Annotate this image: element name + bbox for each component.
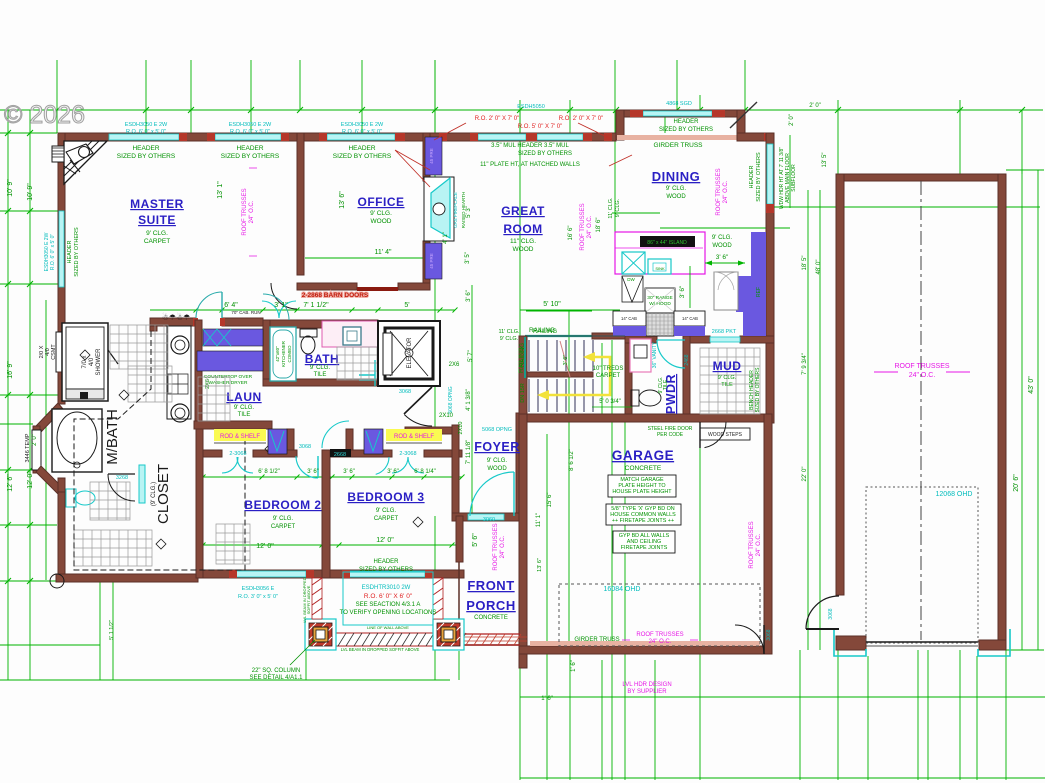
svg-text:SEE DETAIL 4/A1.1: SEE DETAIL 4/A1.1 <box>249 675 303 681</box>
svg-text:2X6: 2X6 <box>449 362 460 368</box>
svg-text:3068: 3068 <box>399 389 411 395</box>
svg-text:© 2026: © 2026 <box>4 101 85 129</box>
svg-text:++ FIRETAPE JOINTS ++: ++ FIRETAPE JOINTS ++ <box>612 518 674 524</box>
svg-text:2' 0": 2' 0" <box>789 114 795 126</box>
svg-text:SIZED BY OTHERS: SIZED BY OTHERS <box>333 153 392 160</box>
svg-text:2X10: 2X10 <box>458 422 464 435</box>
svg-text:5' 0 3/4": 5' 0 3/4" <box>599 399 621 405</box>
svg-text:5' 1 1/2": 5' 1 1/2" <box>109 620 115 640</box>
svg-text:GARAGE: GARAGE <box>612 448 674 463</box>
svg-text:WOOD: WOOD <box>712 243 732 249</box>
svg-text:4' 1 3/8": 4' 1 3/8" <box>466 389 472 411</box>
svg-text:43' 0": 43' 0" <box>1028 376 1035 394</box>
svg-text:14" CAB: 14" CAB <box>682 316 698 321</box>
svg-text:GIRDER TRUSS: GIRDER TRUSS <box>574 637 619 643</box>
svg-text:24" O.C.: 24" O.C. <box>649 639 672 645</box>
svg-text:9' CLG.: 9' CLG. <box>500 336 519 342</box>
svg-text:CSMT: CSMT <box>51 344 57 360</box>
svg-text:RAILING: RAILING <box>520 343 526 367</box>
svg-text:3068: 3068 <box>828 608 834 619</box>
svg-text:HEADER: HEADER <box>236 145 263 152</box>
svg-text:ROOM: ROOM <box>503 222 542 236</box>
svg-text:11' CLG.: 11' CLG. <box>498 329 520 335</box>
svg-text:HEADER: HEADER <box>67 241 73 264</box>
svg-text:6' 4": 6' 4" <box>224 302 238 309</box>
svg-text:9' CLG.: 9' CLG. <box>310 365 330 371</box>
svg-text:HEADER: HEADER <box>373 559 399 565</box>
svg-text:CLOSET: CLOSET <box>155 464 172 524</box>
svg-text:11' CLG.: 11' CLG. <box>608 197 614 219</box>
svg-text:R.O. 6' 0" x 5' 0": R.O. 6' 0" x 5' 0" <box>126 129 166 135</box>
svg-text:ROOF TRUSSES: ROOF TRUSSES <box>242 188 248 235</box>
svg-text:GAS FIREPLACE: GAS FIREPLACE <box>453 192 458 228</box>
svg-text:15' 6": 15' 6" <box>547 493 553 508</box>
svg-text:3068: 3068 <box>299 444 311 450</box>
svg-text:BEDROOM 2: BEDROOM 2 <box>244 498 321 512</box>
svg-text:12' 0": 12' 0" <box>27 471 34 489</box>
svg-text:TILE: TILE <box>663 379 669 390</box>
svg-text:3' 6": 3' 6" <box>387 469 399 475</box>
svg-text:2X6: 2X6 <box>205 379 211 389</box>
svg-text:W/ HOOD: W/ HOOD <box>649 301 671 307</box>
svg-text:5' 7": 5' 7" <box>468 350 474 362</box>
svg-text:9' CLG.: 9' CLG. <box>146 230 168 237</box>
svg-text:6' 8 1/4": 6' 8 1/4" <box>414 469 436 475</box>
svg-text:3' 6": 3' 6" <box>466 290 472 302</box>
svg-text:SINK: SINK <box>655 266 665 271</box>
svg-text:3.5" MUL HEADER 3.5" MUL: 3.5" MUL HEADER 3.5" MUL <box>491 143 569 149</box>
svg-text:R.O. 5' 0" X 7' 0": R.O. 5' 0" X 7' 0" <box>518 124 563 130</box>
svg-text:R.O. 2' 0" X 7' 0": R.O. 2' 0" X 7' 0" <box>559 116 604 122</box>
svg-text:WOOD: WOOD <box>666 194 686 200</box>
svg-text:FRONT: FRONT <box>467 578 514 593</box>
svg-text:LAUN: LAUN <box>226 390 261 404</box>
svg-text:1' 6": 1' 6" <box>541 696 553 702</box>
svg-text:CARPET: CARPET <box>374 516 399 522</box>
svg-text:ROD & SHELF: ROD & SHELF <box>220 434 260 440</box>
svg-text:SIZED BY OTHERS: SIZED BY OTHERS <box>359 567 413 573</box>
svg-text:7/0 x: 7/0 x <box>82 355 88 368</box>
svg-text:SIZED BY OTHERS: SIZED BY OTHERS <box>221 153 280 160</box>
svg-text:HEADER: HEADER <box>749 166 755 189</box>
svg-text:LVL BEAM IN DROPPED SOFFIT ABO: LVL BEAM IN DROPPED SOFFIT ABOVE <box>341 647 420 652</box>
svg-text:2-3068: 2-3068 <box>399 451 416 457</box>
svg-text:MUD: MUD <box>713 359 742 373</box>
svg-text:DINING: DINING <box>652 169 701 184</box>
svg-text:8' 6 1/2": 8' 6 1/2" <box>569 449 575 471</box>
svg-text:CONCRETE: CONCRETE <box>625 465 662 472</box>
svg-text:2-2868 BARN DOORS: 2-2868 BARN DOORS <box>302 292 369 299</box>
svg-text:SIZED BY OTHERS: SIZED BY OTHERS <box>117 153 176 160</box>
svg-text:ESDH3050 E 2W: ESDH3050 E 2W <box>341 122 384 128</box>
svg-text:WOOD STEPS: WOOD STEPS <box>708 432 743 438</box>
svg-text:3' 6": 3' 6" <box>716 254 729 261</box>
svg-text:18' 5": 18' 5" <box>802 256 808 271</box>
svg-text:TILE: TILE <box>238 412 251 418</box>
svg-text:3446 TEMP: 3446 TEMP <box>25 433 31 462</box>
svg-text:4868 SGD: 4868 SGD <box>666 101 692 107</box>
svg-text:3068: 3068 <box>766 629 772 640</box>
svg-text:SOFFIT ABOVE: SOFFIT ABOVE <box>306 585 311 614</box>
svg-text:12' 0": 12' 0" <box>256 543 274 550</box>
svg-text:11" CLG.: 11" CLG. <box>510 238 536 245</box>
svg-text:45 PRE: 45 PRE <box>429 148 434 164</box>
svg-text:SIZED BY OTHERS: SIZED BY OTHERS <box>756 152 762 202</box>
svg-text:6' 8 1/2": 6' 8 1/2" <box>258 469 280 475</box>
svg-text:10' 9": 10' 9" <box>27 183 34 201</box>
svg-text:3' 6": 3' 6" <box>307 469 319 475</box>
svg-text:10" TREDS: 10" TREDS <box>593 366 624 372</box>
svg-text:ROOF TRUSSES: ROOF TRUSSES <box>894 363 949 370</box>
svg-text:20' 6": 20' 6" <box>1013 474 1020 492</box>
svg-text:MASTER: MASTER <box>130 197 184 211</box>
svg-text:SUBFLOOR: SUBFLOOR <box>791 164 797 192</box>
svg-text:CARPET: CARPET <box>596 373 621 379</box>
svg-text:CARPET: CARPET <box>271 524 296 530</box>
svg-text:22' 0": 22' 0" <box>802 467 808 482</box>
svg-text:PER CODE: PER CODE <box>657 432 684 438</box>
svg-text:9' CLG.: 9' CLG. <box>234 405 254 411</box>
svg-text:24" O.C.: 24" O.C. <box>723 180 729 203</box>
svg-text:3' 1": 3' 1" <box>274 302 288 309</box>
svg-text:2' 0": 2' 0" <box>809 103 821 109</box>
svg-text:9' CLG.: 9' CLG. <box>273 516 293 522</box>
svg-text:13' 6": 13' 6" <box>537 558 543 572</box>
svg-text:5068 OPNG: 5068 OPNG <box>448 386 454 413</box>
svg-text:SIZED BY OTHERS: SIZED BY OTHERS <box>659 127 713 133</box>
svg-text:WOOD: WOOD <box>487 466 507 472</box>
svg-text:R.O. 2' 0" X 7' 0": R.O. 2' 0" X 7' 0" <box>475 116 520 122</box>
svg-text:9' CLG.: 9' CLG. <box>487 458 507 464</box>
svg-text:9' CLG.: 9' CLG. <box>718 375 737 381</box>
svg-text:22" SQ. COLUMN: 22" SQ. COLUMN <box>252 668 300 674</box>
svg-text:11' 1": 11' 1" <box>536 513 542 528</box>
svg-text:LINE OF WALL ABOVE: LINE OF WALL ABOVE <box>367 625 409 630</box>
svg-text:4/0: 4/0 <box>89 357 95 366</box>
svg-text:11" PLATE HT, AT HATCHED WALLS: 11" PLATE HT, AT HATCHED WALLS <box>480 162 580 168</box>
svg-text:5' 6": 5' 6" <box>472 533 479 547</box>
svg-text:R.O. 6' 0" x 5' 0": R.O. 6' 0" x 5' 0" <box>230 129 270 135</box>
svg-text:LVL HDR DESIGN: LVL HDR DESIGN <box>622 682 671 688</box>
svg-text:KITCHENER: KITCHENER <box>281 340 286 367</box>
svg-text:24" O.C.: 24" O.C. <box>756 533 762 556</box>
svg-text:HOUSE PLATE HEIGHT: HOUSE PLATE HEIGHT <box>612 489 672 495</box>
svg-text:5' 3": 5' 3" <box>466 206 472 218</box>
svg-text:SIZED BY OTHERS: SIZED BY OTHERS <box>755 367 761 413</box>
svg-text:COMBO: COMBO <box>287 345 292 363</box>
svg-text:2668: 2668 <box>334 452 346 458</box>
svg-text:(9' CLG.): (9' CLG.) <box>151 482 157 506</box>
svg-text:3' 6": 3' 6" <box>679 285 686 298</box>
svg-text:ROOF TRUSSES: ROOF TRUSSES <box>493 523 499 570</box>
svg-text:3268: 3268 <box>116 475 128 481</box>
svg-text:45 PRE: 45 PRE <box>429 253 434 269</box>
svg-text:42"x60": 42"x60" <box>275 346 280 362</box>
svg-text:R.O. 3' 0" x 5' 0": R.O. 3' 0" x 5' 0" <box>238 594 278 600</box>
svg-text:ESDH3050 E 2W: ESDH3050 E 2W <box>229 122 272 128</box>
svg-text:GREAT: GREAT <box>501 204 545 218</box>
svg-text:16' 6": 16' 6" <box>568 226 574 241</box>
svg-text:11' 4": 11' 4" <box>375 249 392 256</box>
svg-text:10' 9": 10' 9" <box>7 179 14 197</box>
svg-text:R.O. 6' 0" x 5' 0": R.O. 6' 0" x 5' 0" <box>342 129 382 135</box>
svg-text:ESDHTR3010 2W: ESDHTR3010 2W <box>362 585 411 591</box>
svg-text:3' 5": 3' 5" <box>465 252 471 264</box>
svg-text:SUITE: SUITE <box>138 213 176 227</box>
svg-text:7' 9 3/4": 7' 9 3/4" <box>802 353 808 375</box>
svg-text:7' 1 1/2": 7' 1 1/2" <box>303 302 329 309</box>
svg-text:ROOF TRUSSES: ROOF TRUSSES <box>636 632 683 638</box>
svg-text:BY SUPPLIER: BY SUPPLIER <box>627 689 667 695</box>
svg-text:5' 10": 5' 10" <box>543 301 561 308</box>
svg-text:SIZED BY OTHERS: SIZED BY OTHERS <box>518 151 572 157</box>
svg-text:DW: DW <box>627 277 635 282</box>
svg-text:DN 15R: DN 15R <box>520 383 526 403</box>
svg-text:2468: 2468 <box>684 354 690 365</box>
svg-text:PORCH: PORCH <box>466 598 515 613</box>
svg-text:13' 5": 13' 5" <box>822 153 828 168</box>
svg-text:ROOF TRUSSES: ROOF TRUSSES <box>716 168 722 215</box>
svg-text:FOYER: FOYER <box>474 440 520 454</box>
svg-text:SIZED BY OTHERS: SIZED BY OTHERS <box>74 227 80 277</box>
svg-text:R.O. 6' 0" X 6' 0": R.O. 6' 0" X 6' 0" <box>364 593 413 600</box>
svg-text:WASHER/DRYER: WASHER/DRYER <box>209 380 248 386</box>
svg-text:7' 11 1/8": 7' 11 1/8" <box>466 440 472 465</box>
svg-text:SHOWER: SHOWER <box>96 348 102 376</box>
svg-text:18' 6": 18' 6" <box>596 218 602 233</box>
svg-text:☃☂☃☂: ☃☂☃☂ <box>162 312 191 322</box>
svg-text:16' 9": 16' 9" <box>7 361 14 379</box>
svg-text:TO VERIFY OPENING LOCATIONS: TO VERIFY OPENING LOCATIONS <box>340 610 437 616</box>
svg-text:9' CLG.: 9' CLG. <box>376 508 396 514</box>
svg-text:3060: 3060 <box>483 517 495 523</box>
svg-text:24" O.C.: 24" O.C. <box>500 535 506 558</box>
svg-text:SEE SEACTION 4/3.1 A: SEE SEACTION 4/3.1 A <box>356 602 421 608</box>
svg-text:12' 0": 12' 0" <box>376 537 394 544</box>
svg-text:ROOF TRUSSES: ROOF TRUSSES <box>580 203 586 250</box>
svg-text:HEADER: HEADER <box>673 119 699 125</box>
svg-text:HEADER: HEADER <box>132 145 159 152</box>
svg-text:5': 5' <box>404 302 409 309</box>
svg-text:13' 6": 13' 6" <box>339 191 346 209</box>
svg-text:TILE: TILE <box>721 382 733 388</box>
svg-text:48' 0": 48' 0" <box>816 260 822 275</box>
svg-text:ROOF TRUSSES: ROOF TRUSSES <box>749 521 755 568</box>
svg-text:24" O.C.: 24" O.C. <box>587 215 593 238</box>
svg-text:M/BATH: M/BATH <box>104 409 121 465</box>
svg-text:RAILING: RAILING <box>533 329 557 335</box>
svg-text:30" RANGE: 30" RANGE <box>647 295 672 301</box>
svg-text:WOOD: WOOD <box>513 246 534 253</box>
svg-text:HEADER: HEADER <box>348 145 375 152</box>
svg-text:3' 6": 3' 6" <box>563 355 569 366</box>
svg-text:FIRETAPE JOINTS: FIRETAPE JOINTS <box>621 545 668 551</box>
svg-text:ESDH5050: ESDH5050 <box>517 104 545 110</box>
svg-text:BATH: BATH <box>305 352 339 366</box>
svg-text:2' 0": 2' 0" <box>32 434 38 446</box>
svg-text:70" CAB. RUN: 70" CAB. RUN <box>231 310 260 315</box>
svg-text:9' CLG.: 9' CLG. <box>712 235 732 241</box>
svg-text:16084 OHD: 16084 OHD <box>604 586 641 593</box>
svg-text:GIRDER TRUSS: GIRDER TRUSS <box>654 142 704 149</box>
svg-text:9' CLG.: 9' CLG. <box>615 198 621 217</box>
svg-text:86" x 44" ISLAND: 86" x 44" ISLAND <box>647 240 687 246</box>
svg-text:3' 6": 3' 6" <box>343 469 355 475</box>
svg-text:14" CAB: 14" CAB <box>621 316 637 321</box>
svg-text:REF: REF <box>756 287 762 297</box>
svg-text:24" O.C.: 24" O.C. <box>249 200 255 223</box>
svg-text:TILE: TILE <box>314 372 327 378</box>
svg-text:ELEVATOR: ELEVATOR <box>407 337 413 369</box>
svg-text:R.O. 6' 0" x 5' 0": R.O. 6' 0" x 5' 0" <box>50 234 56 271</box>
svg-text:5068 OPNG: 5068 OPNG <box>482 427 512 433</box>
svg-text:12068 OHD: 12068 OHD <box>936 491 973 498</box>
svg-text:24" O.C.: 24" O.C. <box>909 372 936 379</box>
svg-text:1' 6": 1' 6" <box>571 660 577 672</box>
svg-text:OFFICE: OFFICE <box>358 195 405 209</box>
svg-text:4' 1": 4' 1" <box>443 232 449 244</box>
svg-text:ROD & SHELF: ROD & SHELF <box>394 434 434 440</box>
svg-text:ESDH3050 E 2W: ESDH3050 E 2W <box>125 122 168 128</box>
svg-text:ESDH3056 E: ESDH3056 E <box>242 586 275 592</box>
svg-text:9' CLG.: 9' CLG. <box>370 210 392 217</box>
svg-text:CARPET: CARPET <box>144 238 170 245</box>
svg-text:12' 6": 12' 6" <box>7 474 14 492</box>
svg-text:13' 1": 13' 1" <box>217 181 224 199</box>
svg-text:2668 PKT: 2668 PKT <box>712 329 737 335</box>
svg-text:9' CLG.: 9' CLG. <box>666 186 686 192</box>
svg-text:BEDROOM 3: BEDROOM 3 <box>347 490 424 504</box>
svg-text:2X10: 2X10 <box>439 413 454 419</box>
svg-text:WOOD: WOOD <box>371 218 392 225</box>
svg-text:2-3068: 2-3068 <box>229 451 246 457</box>
svg-text:CONCRETE: CONCRETE <box>474 615 508 621</box>
